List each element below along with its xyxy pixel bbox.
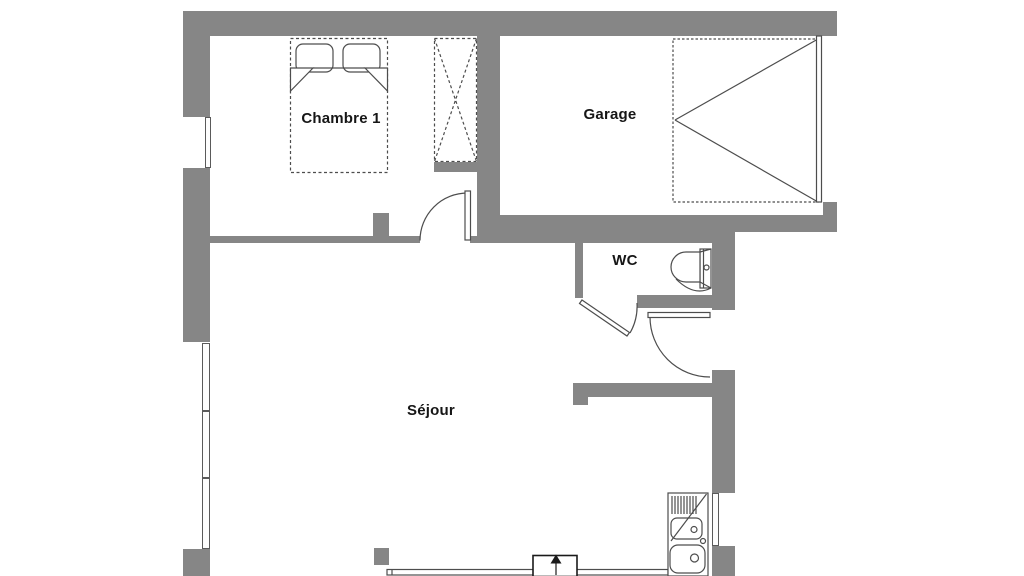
chambre-door-swing (420, 191, 471, 241)
room-label-wc: WC (601, 252, 649, 269)
floorplan-symbols-layer (0, 0, 1024, 576)
kitchen-sink-icon (668, 493, 708, 576)
wardrobe-icon (434, 39, 477, 173)
bottom-window (387, 570, 668, 576)
room-label-garage: Garage (560, 106, 660, 123)
bed-symbol (291, 39, 388, 173)
wc-door-swing (580, 300, 638, 336)
entrance-door-swing (648, 313, 710, 378)
floorplan-canvas: Chambre 1 Garage WC Séjour (0, 0, 1024, 576)
room-label-sejour: Séjour (381, 402, 481, 419)
entry-arrow-icon (533, 555, 577, 576)
toilet-icon (671, 249, 711, 291)
room-label-chambre: Chambre 1 (281, 110, 401, 127)
garage-door-symbol (673, 36, 822, 202)
